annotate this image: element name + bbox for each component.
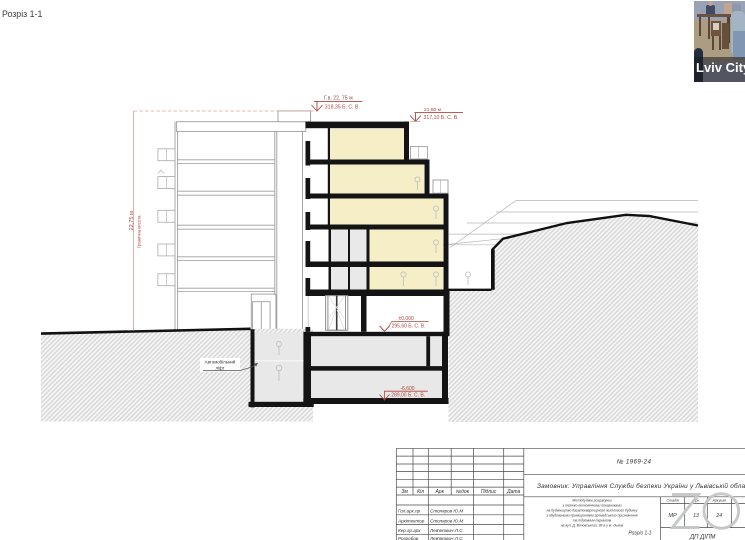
svg-text:Розріз 1-1: Розріз 1-1: [628, 531, 651, 537]
svg-text:на вул. Д. Вітовського, 38-а у: на вул. Д. Вітовського, 38-а у м. Львові: [561, 523, 624, 527]
svg-text:24: 24: [716, 513, 723, 519]
svg-text:на будівництво багатоквартирно: на будівництво багатоквартирного житлово…: [547, 508, 638, 512]
svg-text:22,75 м: 22,75 м: [129, 211, 135, 231]
svg-text:Г.в. 22, 75 м: Г.в. 22, 75 м: [324, 96, 353, 102]
svg-text:Підпис: Підпис: [481, 489, 497, 495]
svg-text:Столяров Ю.М: Столяров Ю.М: [430, 509, 463, 514]
svg-text:21,50 м: 21,50 м: [424, 107, 442, 113]
svg-text:та підземним паркінгом: та підземним паркінгом: [573, 518, 612, 522]
svg-text:Гранична висота: Гранична висота: [137, 215, 142, 248]
svg-text:з вбудованими приміщеннями гро: з вбудованими приміщеннями громадського …: [545, 513, 637, 517]
svg-text:Розробив: Розробив: [398, 536, 419, 540]
svg-text:Зм: Зм: [401, 489, 408, 495]
svg-text:13: 13: [693, 513, 699, 519]
svg-text:-6,600: -6,600: [400, 386, 414, 392]
svg-text:Столяров Ю.М: Столяров Ю.М: [430, 518, 463, 523]
svg-text:№док: №док: [456, 489, 470, 495]
svg-text:№ 1969-24: № 1969-24: [617, 459, 652, 466]
svg-text:Кіл: Кіл: [417, 489, 424, 495]
svg-text:ДП ДІПМ: ДП ДІПМ: [689, 535, 715, 540]
svg-text:318,35 Б. С. В.: 318,35 Б. С. В.: [325, 104, 360, 110]
svg-text:Арк: Арк: [434, 489, 444, 495]
svg-text:Лев'якович Л.С.: Лев'якович Л.С.: [429, 528, 464, 533]
svg-text:Архітектор: Архітектор: [397, 518, 425, 523]
svg-text:Стадія: Стадія: [666, 499, 678, 503]
svg-text:Розріз 1-1: Розріз 1-1: [2, 9, 42, 19]
svg-text:Гол.арх.пр: Гол.арх.пр: [398, 509, 421, 514]
svg-text:±0.000: ±0.000: [399, 316, 414, 322]
svg-text:Лев'якович Л.С.: Лев'якович Л.С.: [429, 536, 464, 540]
svg-text:295,60 Б. С. В.: 295,60 Б. С. В.: [392, 324, 426, 330]
svg-text:з техніко-економічними показни: з техніко-економічними показниками: [561, 503, 621, 507]
svg-text:Містобудівні розрахунки: Містобудівні розрахунки: [572, 498, 611, 502]
svg-text:Дата: Дата: [506, 489, 520, 495]
svg-text:Кер.гр.арх: Кер.гр.арх: [398, 528, 421, 533]
svg-text:317,10 Б. С. В.: 317,10 Б. С. В.: [424, 115, 459, 121]
svg-text:МР: МР: [668, 513, 677, 519]
svg-text:Аркушів: Аркушів: [712, 499, 727, 503]
svg-text:Замовник: Управління Служби бе: Замовник: Управління Служби безпеки Укра…: [537, 482, 745, 490]
svg-text:Автомобільний: Автомобільний: [205, 360, 236, 365]
svg-text:ліфт: ліфт: [215, 365, 224, 370]
svg-text:289,00 Б. С. В.: 289,00 Б. С. В.: [391, 393, 425, 399]
